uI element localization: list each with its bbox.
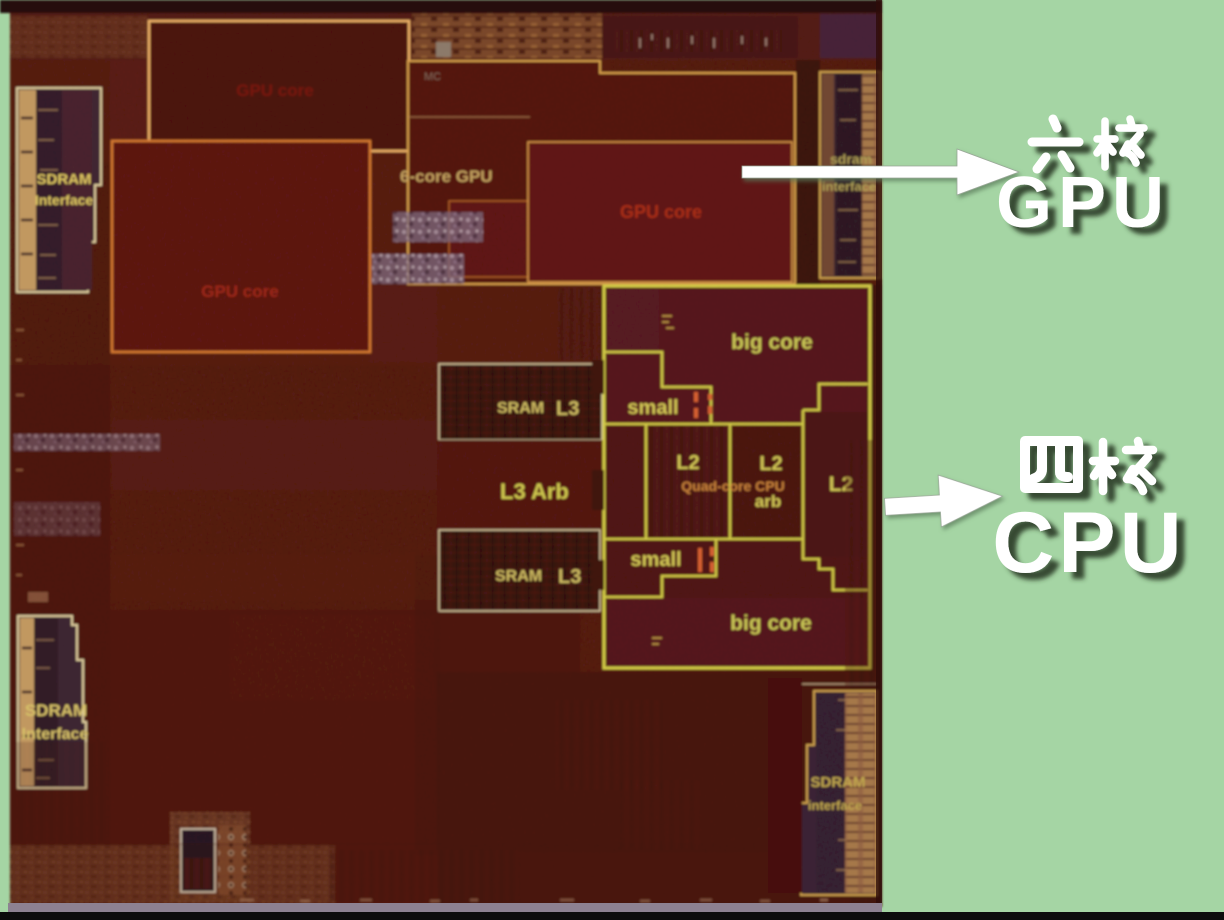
- svg-text:CPU: CPU: [992, 495, 1186, 591]
- svg-text:GPU: GPU: [996, 163, 1170, 243]
